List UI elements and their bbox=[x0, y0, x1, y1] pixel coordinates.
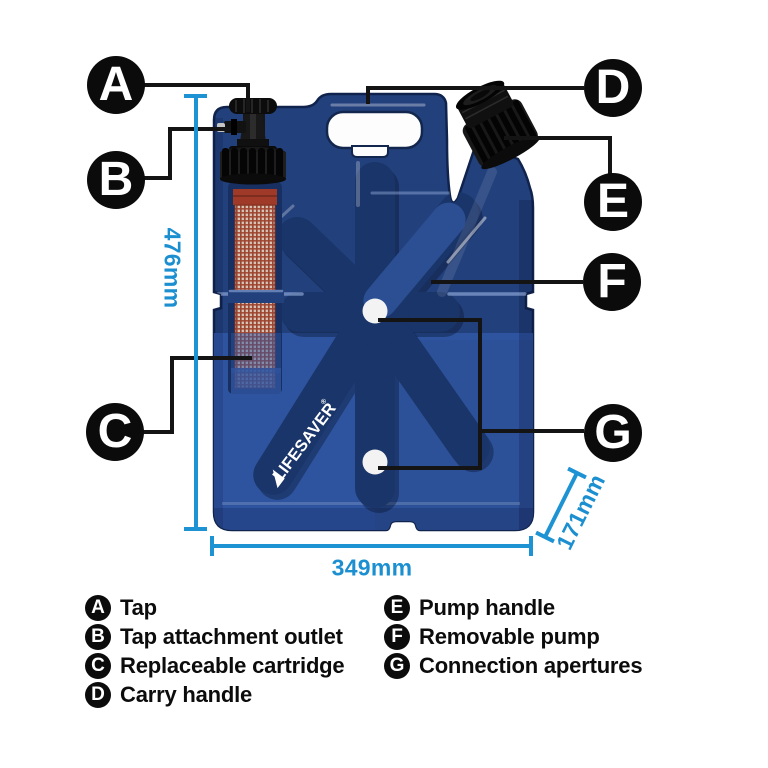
diagram-canvas: LIFESAVER ® bbox=[0, 0, 768, 768]
callout-line-e bbox=[608, 136, 612, 174]
callout-line-g bbox=[378, 466, 482, 470]
tap-knurled-cap bbox=[220, 147, 286, 185]
width-dimension-tick bbox=[210, 536, 214, 556]
height-dimension-line bbox=[194, 96, 198, 530]
legend-badge-g: G bbox=[384, 653, 410, 679]
legend-badge-f: F bbox=[384, 624, 410, 650]
legend-badge-c: C bbox=[85, 653, 111, 679]
callout-line-g bbox=[478, 318, 482, 470]
callout-marker-b: B bbox=[87, 151, 145, 209]
callout-marker-d: D bbox=[584, 59, 642, 117]
legend-label-g: Connection apertures bbox=[419, 653, 642, 679]
width-dimension-line bbox=[212, 544, 533, 548]
legend-badge-b: B bbox=[85, 624, 111, 650]
callout-line-c bbox=[170, 356, 252, 360]
callout-line-g bbox=[478, 429, 584, 433]
width-dimension-label: 349mm bbox=[332, 555, 413, 582]
legend-badge-a: A bbox=[85, 595, 111, 621]
legend-item-pump-handle: E Pump handle bbox=[384, 593, 642, 622]
legend-column-right: E Pump handle F Removable pump G Connect… bbox=[384, 593, 642, 680]
callout-line-a bbox=[246, 83, 250, 112]
legend-item-tap-attachment-outlet: B Tap attachment outlet bbox=[85, 622, 344, 651]
legend-label-c: Replaceable cartridge bbox=[120, 653, 344, 679]
legend-item-replaceable-cartridge: C Replaceable cartridge bbox=[85, 651, 344, 680]
callout-line-a bbox=[144, 83, 250, 87]
callout-marker-g: G bbox=[584, 404, 642, 462]
width-dimension-tick bbox=[529, 536, 533, 556]
callout-line-e bbox=[504, 136, 612, 140]
legend-badge-d: D bbox=[85, 682, 111, 708]
height-dimension-label: 476mm bbox=[159, 228, 186, 309]
legend-column-left: A Tap B Tap attachment outlet C Replacea… bbox=[85, 593, 344, 709]
legend-label-a: Tap bbox=[120, 595, 157, 621]
legend-label-f: Removable pump bbox=[419, 624, 600, 650]
legend-label-b: Tap attachment outlet bbox=[120, 624, 343, 650]
legend-label-d: Carry handle bbox=[120, 682, 252, 708]
callout-line-b bbox=[168, 127, 172, 180]
legend-item-connection-apertures: G Connection apertures bbox=[384, 651, 642, 680]
callout-line-c bbox=[170, 356, 174, 434]
legend-label-e: Pump handle bbox=[419, 595, 555, 621]
callout-marker-f: F bbox=[583, 253, 641, 311]
tap-handle bbox=[229, 98, 277, 114]
callout-marker-a: A bbox=[87, 56, 145, 114]
callout-line-g bbox=[378, 318, 482, 322]
height-dimension-tick bbox=[184, 94, 207, 98]
replaceable-cartridge bbox=[228, 182, 284, 394]
legend-item-tap: A Tap bbox=[85, 593, 344, 622]
height-dimension-tick bbox=[184, 527, 207, 531]
legend-item-carry-handle: D Carry handle bbox=[85, 680, 344, 709]
callout-line-f bbox=[431, 280, 583, 284]
callout-marker-c: C bbox=[86, 403, 144, 461]
callout-line-b bbox=[168, 127, 230, 131]
legend-badge-e: E bbox=[384, 595, 410, 621]
callout-line-d bbox=[366, 86, 584, 90]
callout-marker-e: E bbox=[584, 173, 642, 231]
aperture-bottom bbox=[363, 450, 388, 475]
legend-item-removable-pump: F Removable pump bbox=[384, 622, 642, 651]
